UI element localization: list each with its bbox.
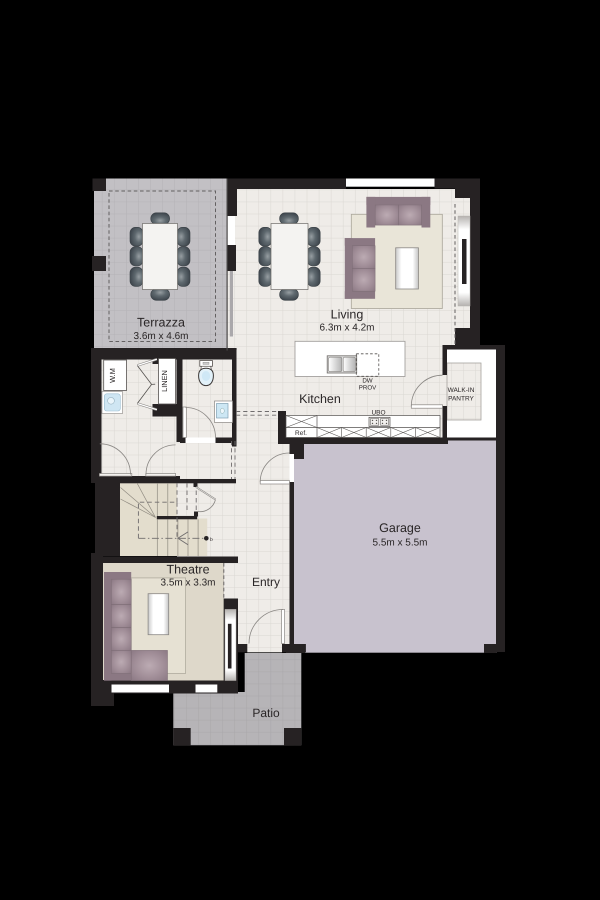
svg-text:LINEN: LINEN [160, 370, 169, 392]
svg-text:6.3m x 4.2m: 6.3m x 4.2m [319, 323, 374, 334]
svg-text:W.M: W.M [108, 368, 117, 383]
svg-text:Living: Living [331, 308, 364, 322]
svg-text:Theatre: Theatre [166, 563, 209, 577]
svg-text:5.5m x 5.5m: 5.5m x 5.5m [372, 538, 427, 549]
svg-text:Patio: Patio [252, 706, 280, 720]
svg-text:3.5m x 3.3m: 3.5m x 3.3m [160, 578, 215, 589]
svg-text:Garage: Garage [379, 521, 421, 535]
svg-text:Entry: Entry [252, 575, 280, 589]
svg-text:PROV: PROV [359, 384, 377, 391]
svg-text:Terrazza: Terrazza [137, 316, 185, 330]
svg-text:WALK-IN: WALK-IN [448, 387, 475, 394]
svg-text:Kitchen: Kitchen [299, 392, 341, 406]
svg-text:3.6m x 4.6m: 3.6m x 4.6m [133, 331, 188, 342]
svg-text:PANTRY: PANTRY [448, 396, 474, 403]
svg-text:b: b [210, 537, 213, 543]
svg-text:UBO: UBO [371, 410, 385, 417]
svg-text:Ref.: Ref. [295, 430, 307, 437]
